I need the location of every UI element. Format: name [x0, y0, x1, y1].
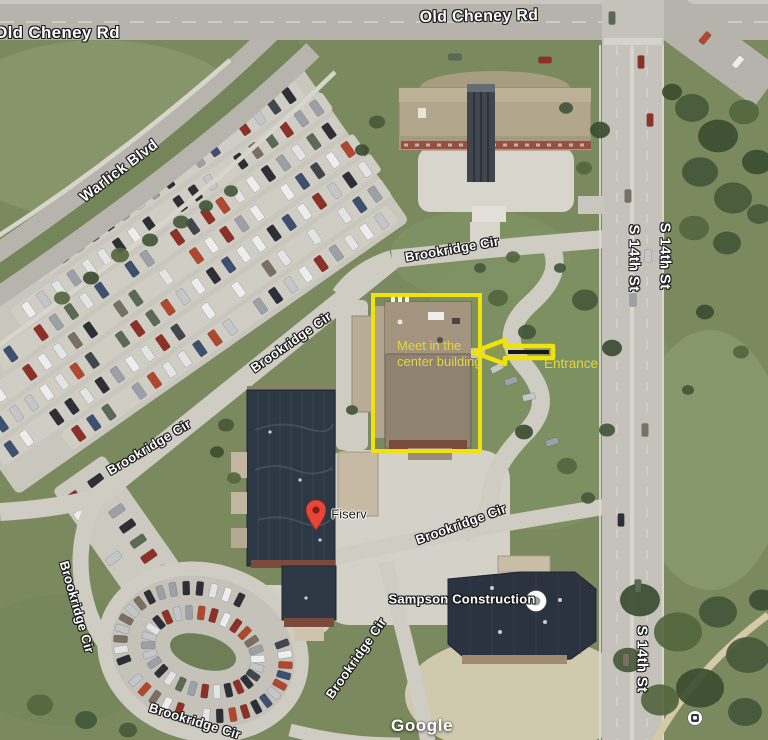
sampson-label[interactable]: Sampson Construction	[388, 592, 535, 607]
fiserv-pin[interactable]	[306, 500, 326, 530]
transit-stop-icon[interactable]	[686, 709, 704, 727]
fiserv-label[interactable]: Fiserv	[331, 507, 366, 522]
satellite-imagery	[0, 0, 768, 740]
map-canvas[interactable]: Old Cheney RdOld Cheney RdWarlick BlvdS …	[0, 0, 768, 740]
